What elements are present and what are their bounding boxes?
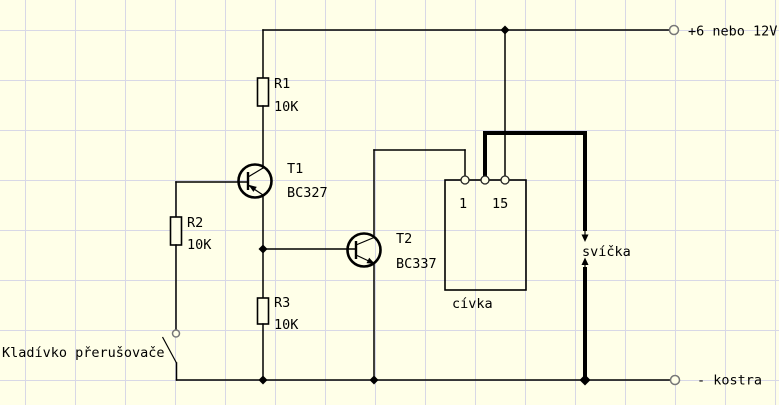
breaker-label: Kladívko přerušovače: [2, 345, 165, 361]
resistor-r3: [258, 298, 269, 380]
positive-rail: [263, 26, 679, 35]
t2-name-label: T2: [396, 231, 412, 247]
r3-name-label: R3: [274, 295, 290, 311]
schematic-canvas: +6 nebo 12V - kostra R1 10K R2 10K R3 10…: [0, 0, 779, 405]
positive-rail-label: +6 nebo 12V: [688, 24, 777, 40]
resistor-r1: [258, 30, 269, 168]
arrow-down-icon: [582, 235, 589, 243]
t2-part-label: BC337: [396, 256, 437, 272]
resistor-body: [258, 78, 269, 106]
t1-name-label: T1: [287, 161, 303, 177]
ignition-coil: [445, 30, 585, 290]
resistor-r2: [171, 182, 182, 330]
breaker-switch: [163, 330, 180, 380]
r1-value-label: 10K: [274, 99, 299, 115]
transistor-circle: [348, 234, 381, 267]
coil-pin15-label: 15: [492, 196, 508, 212]
transistor-circle: [239, 165, 272, 198]
coil-pin-icon: [501, 176, 509, 184]
collector-lead: [356, 238, 374, 246]
positive-terminal-icon: [670, 26, 679, 35]
coil-label: cívka: [452, 296, 493, 312]
circuit-diagram: +6 nebo 12V - kostra R1 10K R2 10K R3 10…: [0, 0, 779, 405]
resistor-body: [171, 217, 182, 245]
ground-rail-label: - kostra: [697, 373, 762, 389]
ground-rail: [177, 375, 680, 386]
ht-wire: [483, 133, 585, 231]
r3-value-label: 10K: [274, 317, 299, 333]
ground-terminal-icon: [671, 376, 680, 385]
switch-contact-icon: [173, 330, 180, 337]
spark-plug-label: svíčka: [582, 244, 631, 260]
pnp-arrow-icon: [249, 185, 257, 192]
collector-lead: [248, 168, 263, 177]
r2-name-label: R2: [187, 215, 203, 231]
resistor-body: [258, 298, 269, 324]
coil-box: [445, 180, 526, 290]
t1-part-label: BC327: [287, 185, 328, 201]
coil-pin-icon: [461, 176, 469, 184]
coil-pin1-label: 1: [459, 196, 467, 212]
switch-blade: [163, 337, 177, 363]
r1-name-label: R1: [274, 76, 290, 92]
transistor-t1: [176, 165, 272, 299]
coil-pin-icon: [481, 176, 489, 184]
r2-value-label: 10K: [187, 237, 212, 253]
